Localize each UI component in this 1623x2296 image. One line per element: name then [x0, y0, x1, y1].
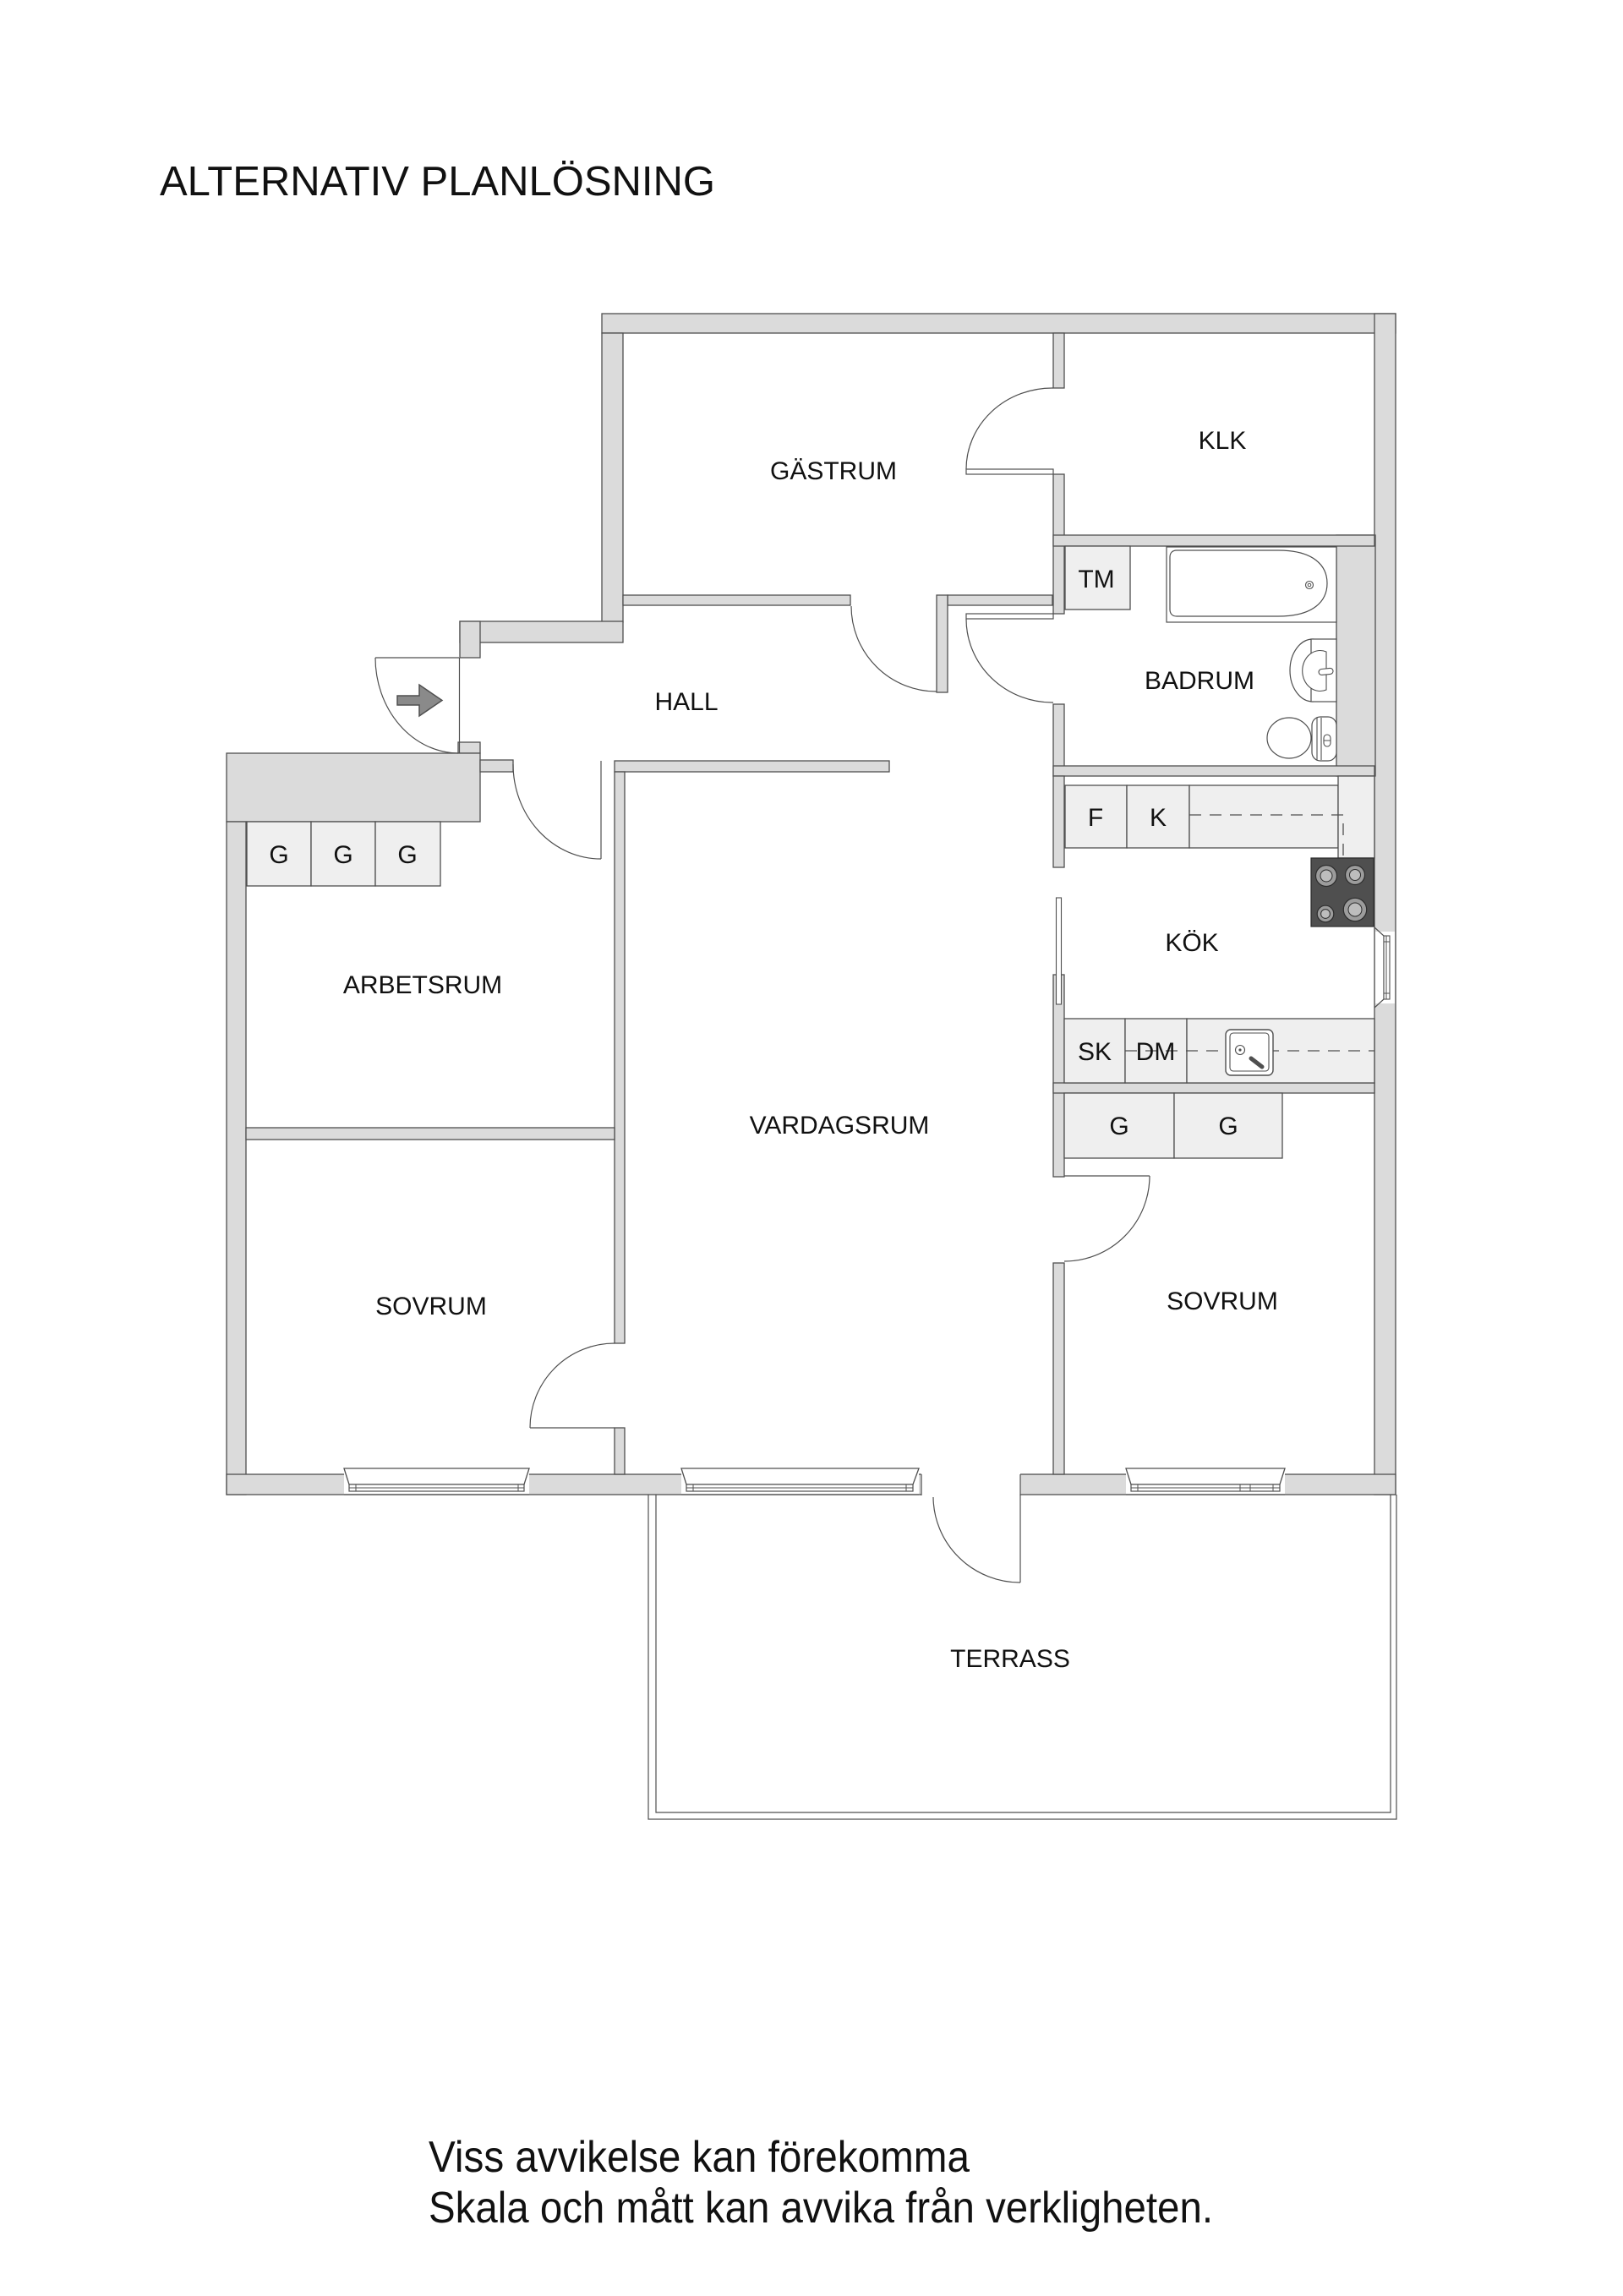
svg-text:TM: TM — [1078, 566, 1114, 593]
svg-text:HALL: HALL — [654, 688, 718, 716]
svg-text:ARBETSRUM: ARBETSRUM — [343, 971, 502, 999]
svg-text:TERRASS: TERRASS — [950, 1645, 1070, 1673]
svg-text:Viss avvikelse kan förekomma: Viss avvikelse kan förekomma — [429, 2133, 970, 2182]
svg-text:BADRUM: BADRUM — [1145, 667, 1254, 695]
svg-text:SK: SK — [1078, 1038, 1112, 1066]
svg-text:KÖK: KÖK — [1165, 929, 1218, 957]
svg-text:Skala och mått kan avvika från: Skala och mått kan avvika från verklighe… — [429, 2184, 1213, 2233]
svg-text:GÄSTRUM: GÄSTRUM — [770, 457, 897, 485]
svg-text:K: K — [1150, 804, 1167, 832]
svg-text:DM: DM — [1136, 1038, 1176, 1066]
svg-text:G: G — [1109, 1112, 1128, 1140]
svg-text:SOVRUM: SOVRUM — [1167, 1287, 1278, 1315]
svg-text:G: G — [1218, 1112, 1238, 1140]
svg-text:G: G — [269, 841, 288, 869]
svg-text:G: G — [333, 841, 352, 869]
svg-text:ALTERNATIV PLANLÖSNING: ALTERNATIV PLANLÖSNING — [160, 159, 715, 205]
svg-text:F: F — [1088, 804, 1103, 832]
svg-text:KLK: KLK — [1199, 427, 1247, 455]
svg-text:G: G — [397, 841, 417, 869]
svg-text:VARDAGSRUM: VARDAGSRUM — [750, 1112, 930, 1140]
svg-text:SOVRUM: SOVRUM — [375, 1293, 487, 1320]
